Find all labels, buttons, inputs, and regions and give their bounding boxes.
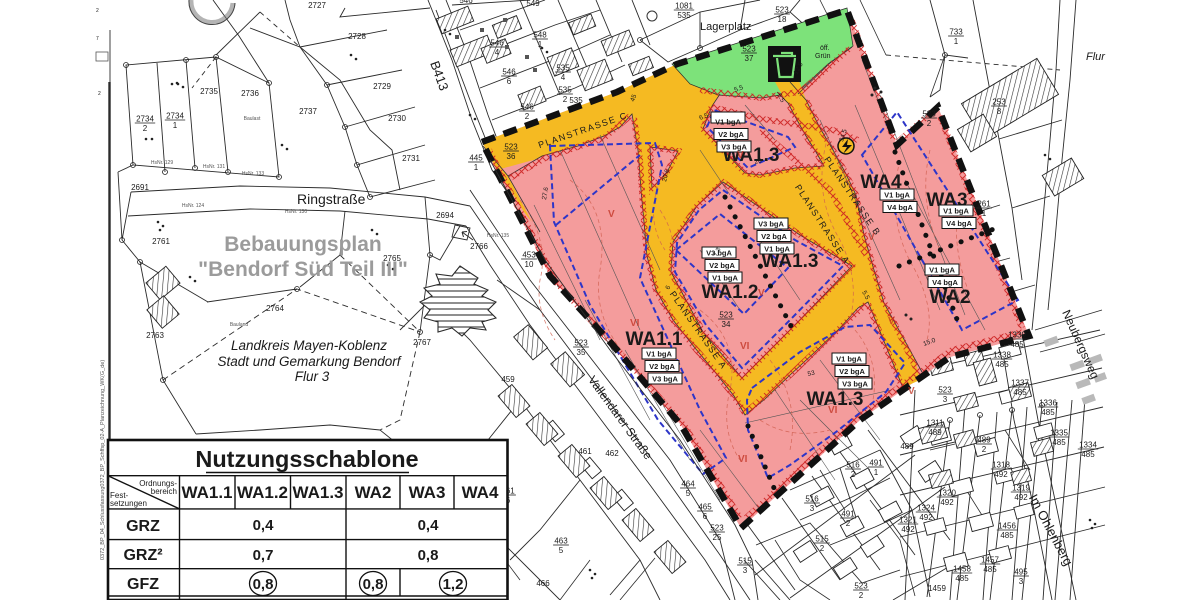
svg-text:1337: 1337 bbox=[1011, 379, 1029, 388]
svg-text:2761: 2761 bbox=[152, 237, 170, 246]
svg-text:1319: 1319 bbox=[1012, 484, 1030, 493]
svg-text:492: 492 bbox=[1014, 493, 1028, 502]
svg-text:25: 25 bbox=[713, 533, 722, 542]
svg-text:2765: 2765 bbox=[383, 254, 401, 263]
svg-text:WA2: WA2 bbox=[355, 483, 392, 502]
svg-text:3: 3 bbox=[810, 504, 815, 513]
svg-text:535: 535 bbox=[556, 64, 570, 73]
svg-text:2734: 2734 bbox=[136, 115, 154, 124]
svg-text:WA3: WA3 bbox=[409, 483, 446, 502]
svg-text:VI: VI bbox=[828, 405, 838, 416]
svg-text:"Bendorf Süd Teil III": "Bendorf Süd Teil III" bbox=[198, 258, 408, 281]
svg-text:2: 2 bbox=[927, 119, 932, 128]
svg-text:489: 489 bbox=[928, 428, 942, 437]
svg-text:1338: 1338 bbox=[993, 351, 1011, 360]
svg-text:HsNr. 130: HsNr. 130 bbox=[285, 209, 307, 215]
svg-text:3: 3 bbox=[1019, 577, 1024, 586]
svg-text:546: 546 bbox=[520, 103, 534, 112]
svg-text:2: 2 bbox=[851, 470, 856, 479]
svg-text:523: 523 bbox=[775, 6, 789, 15]
svg-text:34: 34 bbox=[722, 320, 731, 329]
svg-text:HsNr. 124: HsNr. 124 bbox=[182, 203, 204, 209]
svg-text:VI: VI bbox=[630, 318, 640, 329]
svg-text:HsNr. 129: HsNr. 129 bbox=[151, 160, 173, 166]
svg-text:setzungen: setzungen bbox=[110, 499, 147, 508]
svg-text:V1 bgA: V1 bgA bbox=[646, 350, 672, 359]
svg-text:2: 2 bbox=[820, 544, 825, 553]
svg-text:459: 459 bbox=[501, 375, 515, 384]
svg-text:485: 485 bbox=[955, 574, 969, 583]
svg-text:VI: VI bbox=[738, 454, 748, 465]
svg-text:1321: 1321 bbox=[899, 516, 917, 525]
svg-text:Ringstraße: Ringstraße bbox=[297, 191, 366, 207]
svg-text:516: 516 bbox=[846, 461, 860, 470]
svg-text:0,7: 0,7 bbox=[253, 547, 274, 564]
svg-text:2694: 2694 bbox=[436, 211, 454, 220]
svg-text:485: 485 bbox=[1081, 450, 1095, 459]
svg-text:35: 35 bbox=[577, 348, 586, 357]
svg-text:5: 5 bbox=[559, 546, 564, 555]
svg-text:Flur 3: Flur 3 bbox=[295, 369, 330, 384]
svg-text:1081: 1081 bbox=[675, 2, 693, 11]
svg-text:492: 492 bbox=[940, 498, 954, 507]
svg-text:515: 515 bbox=[738, 557, 752, 566]
svg-text:V: V bbox=[758, 288, 765, 299]
svg-text:4: 4 bbox=[495, 48, 500, 57]
svg-text:1: 1 bbox=[954, 37, 959, 46]
svg-text:Flur: Flur bbox=[1086, 51, 1106, 63]
svg-text:Grün: Grün bbox=[815, 53, 831, 60]
svg-text:V1 bgA: V1 bgA bbox=[836, 355, 862, 364]
svg-text:4: 4 bbox=[561, 73, 566, 82]
svg-text:GFZ: GFZ bbox=[127, 576, 159, 593]
svg-text:523: 523 bbox=[742, 45, 756, 54]
svg-text:GRZ²: GRZ² bbox=[123, 547, 162, 564]
svg-text:1: 1 bbox=[538, 40, 543, 49]
svg-text:515: 515 bbox=[815, 535, 829, 544]
svg-text:V4 bgA: V4 bgA bbox=[887, 203, 913, 212]
svg-text:1334: 1334 bbox=[1079, 441, 1097, 450]
svg-text:492: 492 bbox=[994, 470, 1008, 479]
svg-text:VI: VI bbox=[740, 341, 750, 352]
svg-text:261: 261 bbox=[977, 200, 991, 209]
svg-text:485: 485 bbox=[1000, 531, 1014, 540]
svg-text:Baulast: Baulast bbox=[244, 116, 261, 122]
svg-text:1457: 1457 bbox=[981, 556, 999, 565]
svg-text:WA2: WA2 bbox=[929, 287, 970, 308]
svg-text:6: 6 bbox=[507, 77, 512, 86]
svg-text:37: 37 bbox=[745, 54, 754, 63]
svg-text:2730: 2730 bbox=[388, 114, 406, 123]
svg-text:V1 bgA: V1 bgA bbox=[884, 191, 910, 200]
svg-text:2: 2 bbox=[982, 445, 987, 454]
svg-text:2764: 2764 bbox=[266, 304, 284, 313]
svg-text:492: 492 bbox=[919, 513, 933, 522]
svg-text:1456: 1456 bbox=[998, 522, 1016, 531]
svg-text:2731: 2731 bbox=[402, 154, 420, 163]
svg-text:0,8: 0,8 bbox=[253, 576, 274, 593]
svg-text:253: 253 bbox=[992, 98, 1006, 107]
svg-text:2767: 2767 bbox=[413, 338, 431, 347]
svg-text:V: V bbox=[868, 232, 875, 243]
svg-text:492: 492 bbox=[901, 525, 915, 534]
svg-text:548: 548 bbox=[533, 31, 547, 40]
svg-text:HsNr. 135: HsNr. 135 bbox=[487, 233, 509, 239]
svg-text:V3 bgA: V3 bgA bbox=[652, 375, 678, 384]
svg-text:2766: 2766 bbox=[470, 242, 488, 251]
svg-text:2: 2 bbox=[98, 91, 101, 97]
svg-text:465: 465 bbox=[698, 503, 712, 512]
svg-text:5: 5 bbox=[686, 489, 691, 498]
svg-text:V4 bgA: V4 bgA bbox=[946, 219, 972, 228]
svg-text:WA1.2: WA1.2 bbox=[237, 483, 288, 502]
svg-text:2727: 2727 bbox=[308, 1, 326, 10]
svg-text:491: 491 bbox=[841, 510, 855, 519]
svg-text:535: 535 bbox=[558, 86, 572, 95]
svg-text:V2 bgA: V2 bgA bbox=[649, 362, 675, 371]
svg-text:WA1.3: WA1.3 bbox=[292, 483, 343, 502]
svg-text:WA4: WA4 bbox=[462, 483, 499, 502]
svg-text:466: 466 bbox=[536, 579, 550, 588]
svg-text:WA1.1: WA1.1 bbox=[181, 483, 232, 502]
svg-text:V1 bgA: V1 bgA bbox=[943, 207, 969, 216]
svg-text:V1 bgA: V1 bgA bbox=[764, 245, 790, 254]
svg-text:523: 523 bbox=[504, 143, 518, 152]
svg-text:2: 2 bbox=[96, 8, 99, 14]
svg-text:523: 523 bbox=[854, 582, 868, 591]
svg-text:V: V bbox=[608, 209, 615, 220]
svg-text:Bebauungsplan: Bebauungsplan bbox=[224, 233, 382, 256]
svg-text:485: 485 bbox=[1010, 340, 1024, 349]
svg-text:V: V bbox=[888, 316, 895, 327]
svg-text:V2 bgA: V2 bgA bbox=[839, 367, 865, 376]
svg-text:V3 bgA: V3 bgA bbox=[758, 220, 784, 229]
svg-text:2: 2 bbox=[846, 519, 851, 528]
svg-text:2734: 2734 bbox=[166, 112, 184, 121]
svg-text:523: 523 bbox=[938, 386, 952, 395]
svg-text:1339: 1339 bbox=[1008, 331, 1026, 340]
svg-text:462: 462 bbox=[605, 449, 619, 458]
svg-text:1: 1 bbox=[874, 468, 879, 477]
svg-text:Landkreis Mayen-Koblenz: Landkreis Mayen-Koblenz bbox=[231, 338, 387, 353]
svg-text:463: 463 bbox=[554, 537, 568, 546]
svg-text:489: 489 bbox=[900, 442, 914, 451]
svg-text:1311: 1311 bbox=[926, 419, 944, 428]
svg-text:0,4: 0,4 bbox=[418, 517, 440, 534]
svg-text:491: 491 bbox=[869, 459, 883, 468]
svg-text:V2 bgA: V2 bgA bbox=[761, 232, 787, 241]
svg-text:V2 bgA: V2 bgA bbox=[709, 261, 735, 270]
svg-text:HsNr. 133: HsNr. 133 bbox=[242, 171, 264, 177]
svg-text:2: 2 bbox=[859, 591, 864, 600]
svg-text:18: 18 bbox=[778, 15, 787, 24]
svg-text:1318: 1318 bbox=[992, 461, 1010, 470]
svg-text:549: 549 bbox=[526, 0, 540, 8]
svg-text:HsNr. 131: HsNr. 131 bbox=[203, 164, 225, 170]
svg-text:Lagerplatz: Lagerplatz bbox=[700, 21, 751, 33]
svg-text:V1 bgA: V1 bgA bbox=[712, 274, 738, 283]
svg-text:453: 453 bbox=[522, 251, 536, 260]
svg-text:V1 bgA: V1 bgA bbox=[715, 118, 741, 127]
svg-text:1335: 1335 bbox=[1050, 429, 1068, 438]
svg-text:523: 523 bbox=[710, 524, 724, 533]
svg-text:523: 523 bbox=[922, 110, 936, 119]
svg-text:1: 1 bbox=[474, 163, 479, 172]
svg-text:1336: 1336 bbox=[1039, 399, 1057, 408]
svg-text:V: V bbox=[908, 386, 915, 397]
svg-text:445: 445 bbox=[469, 154, 483, 163]
svg-text:0,8: 0,8 bbox=[363, 576, 384, 593]
svg-text:546: 546 bbox=[459, 0, 473, 5]
svg-text:0372_BP_04_Schlussfassung0372_: 0372_BP_04_Schlussfassung0372_BP_Schffsp… bbox=[100, 360, 106, 560]
svg-text:2736: 2736 bbox=[241, 89, 259, 98]
svg-text:0,8: 0,8 bbox=[418, 547, 439, 564]
svg-text:495: 495 bbox=[1014, 568, 1028, 577]
svg-text:2: 2 bbox=[525, 112, 530, 121]
svg-text:461: 461 bbox=[578, 447, 592, 456]
svg-text:2737: 2737 bbox=[299, 107, 317, 116]
svg-text:523: 523 bbox=[574, 339, 588, 348]
svg-text:1459: 1459 bbox=[928, 584, 946, 593]
svg-text:489: 489 bbox=[977, 436, 991, 445]
svg-text:WA1.1: WA1.1 bbox=[625, 329, 682, 350]
svg-text:1320: 1320 bbox=[938, 489, 956, 498]
svg-text:3: 3 bbox=[943, 395, 948, 404]
svg-text:2: 2 bbox=[143, 124, 148, 133]
svg-text:Stadt und Gemarkung Bendorf: Stadt und Gemarkung Bendorf bbox=[217, 354, 401, 369]
svg-text:3: 3 bbox=[743, 566, 748, 575]
svg-text:2735: 2735 bbox=[200, 87, 218, 96]
svg-text:535: 535 bbox=[569, 96, 583, 105]
svg-text:1: 1 bbox=[982, 209, 987, 218]
svg-text:WA1.2: WA1.2 bbox=[701, 282, 758, 303]
svg-text:7: 7 bbox=[96, 36, 99, 42]
svg-text:535: 535 bbox=[677, 11, 691, 20]
svg-text:2728: 2728 bbox=[348, 32, 366, 41]
svg-text:1: 1 bbox=[173, 121, 178, 130]
svg-text:V2 bgA: V2 bgA bbox=[718, 130, 744, 139]
svg-text:0,4: 0,4 bbox=[253, 517, 275, 534]
svg-text:6: 6 bbox=[703, 512, 708, 521]
svg-text:523: 523 bbox=[719, 311, 733, 320]
svg-text:2729: 2729 bbox=[373, 82, 391, 91]
svg-text:485: 485 bbox=[995, 360, 1009, 369]
svg-text:bereich: bereich bbox=[151, 487, 177, 496]
svg-text:485: 485 bbox=[1013, 388, 1027, 397]
svg-text:516: 516 bbox=[805, 495, 819, 504]
svg-text:36: 36 bbox=[507, 152, 516, 161]
svg-text:2763: 2763 bbox=[146, 331, 164, 340]
svg-text:2691: 2691 bbox=[131, 183, 149, 192]
svg-text:V1 bgA: V1 bgA bbox=[929, 266, 955, 275]
svg-text:485: 485 bbox=[1052, 438, 1066, 447]
svg-text:8: 8 bbox=[997, 107, 1002, 116]
svg-text:546: 546 bbox=[502, 68, 516, 77]
svg-text:464: 464 bbox=[681, 480, 695, 489]
svg-text:öff.: öff. bbox=[820, 45, 830, 52]
svg-text:733: 733 bbox=[949, 28, 963, 37]
svg-text:GRZ: GRZ bbox=[126, 518, 160, 535]
svg-text:10: 10 bbox=[525, 260, 534, 269]
svg-text:1324: 1324 bbox=[917, 504, 935, 513]
svg-text:V4 bgA: V4 bgA bbox=[932, 278, 958, 287]
svg-text:485: 485 bbox=[1041, 408, 1055, 417]
svg-text:V: V bbox=[737, 150, 744, 161]
svg-text:Nutzungsschablone: Nutzungsschablone bbox=[195, 446, 418, 472]
svg-text:V3 bgA: V3 bgA bbox=[842, 380, 868, 389]
svg-text:546: 546 bbox=[490, 39, 504, 48]
svg-text:485: 485 bbox=[983, 565, 997, 574]
svg-text:1,2: 1,2 bbox=[443, 576, 464, 593]
svg-text:Bauland: Bauland bbox=[230, 322, 249, 328]
svg-text:2: 2 bbox=[563, 95, 568, 104]
svg-text:1458: 1458 bbox=[953, 565, 971, 574]
